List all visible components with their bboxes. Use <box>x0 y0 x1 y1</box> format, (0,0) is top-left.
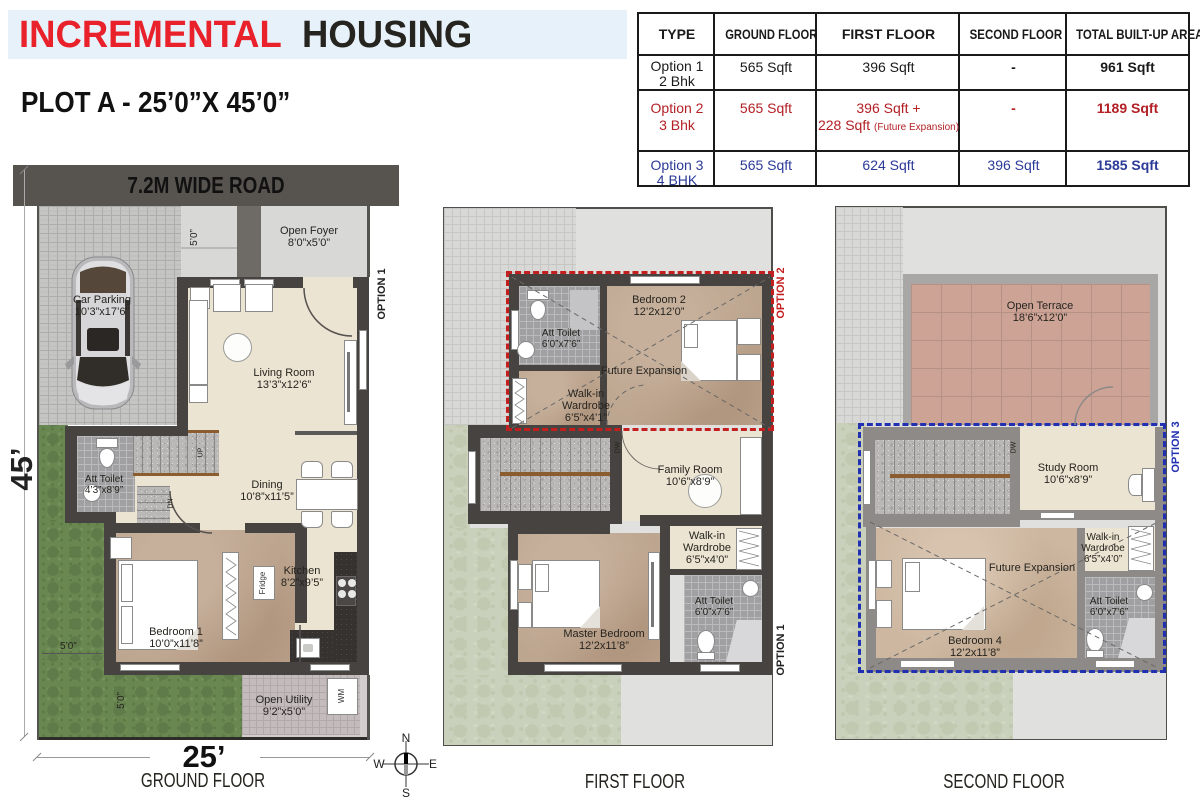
svg-text:N: N <box>402 731 411 745</box>
svg-text:E: E <box>429 757 437 771</box>
svg-text:W: W <box>373 757 385 771</box>
svg-text:S: S <box>402 786 410 800</box>
